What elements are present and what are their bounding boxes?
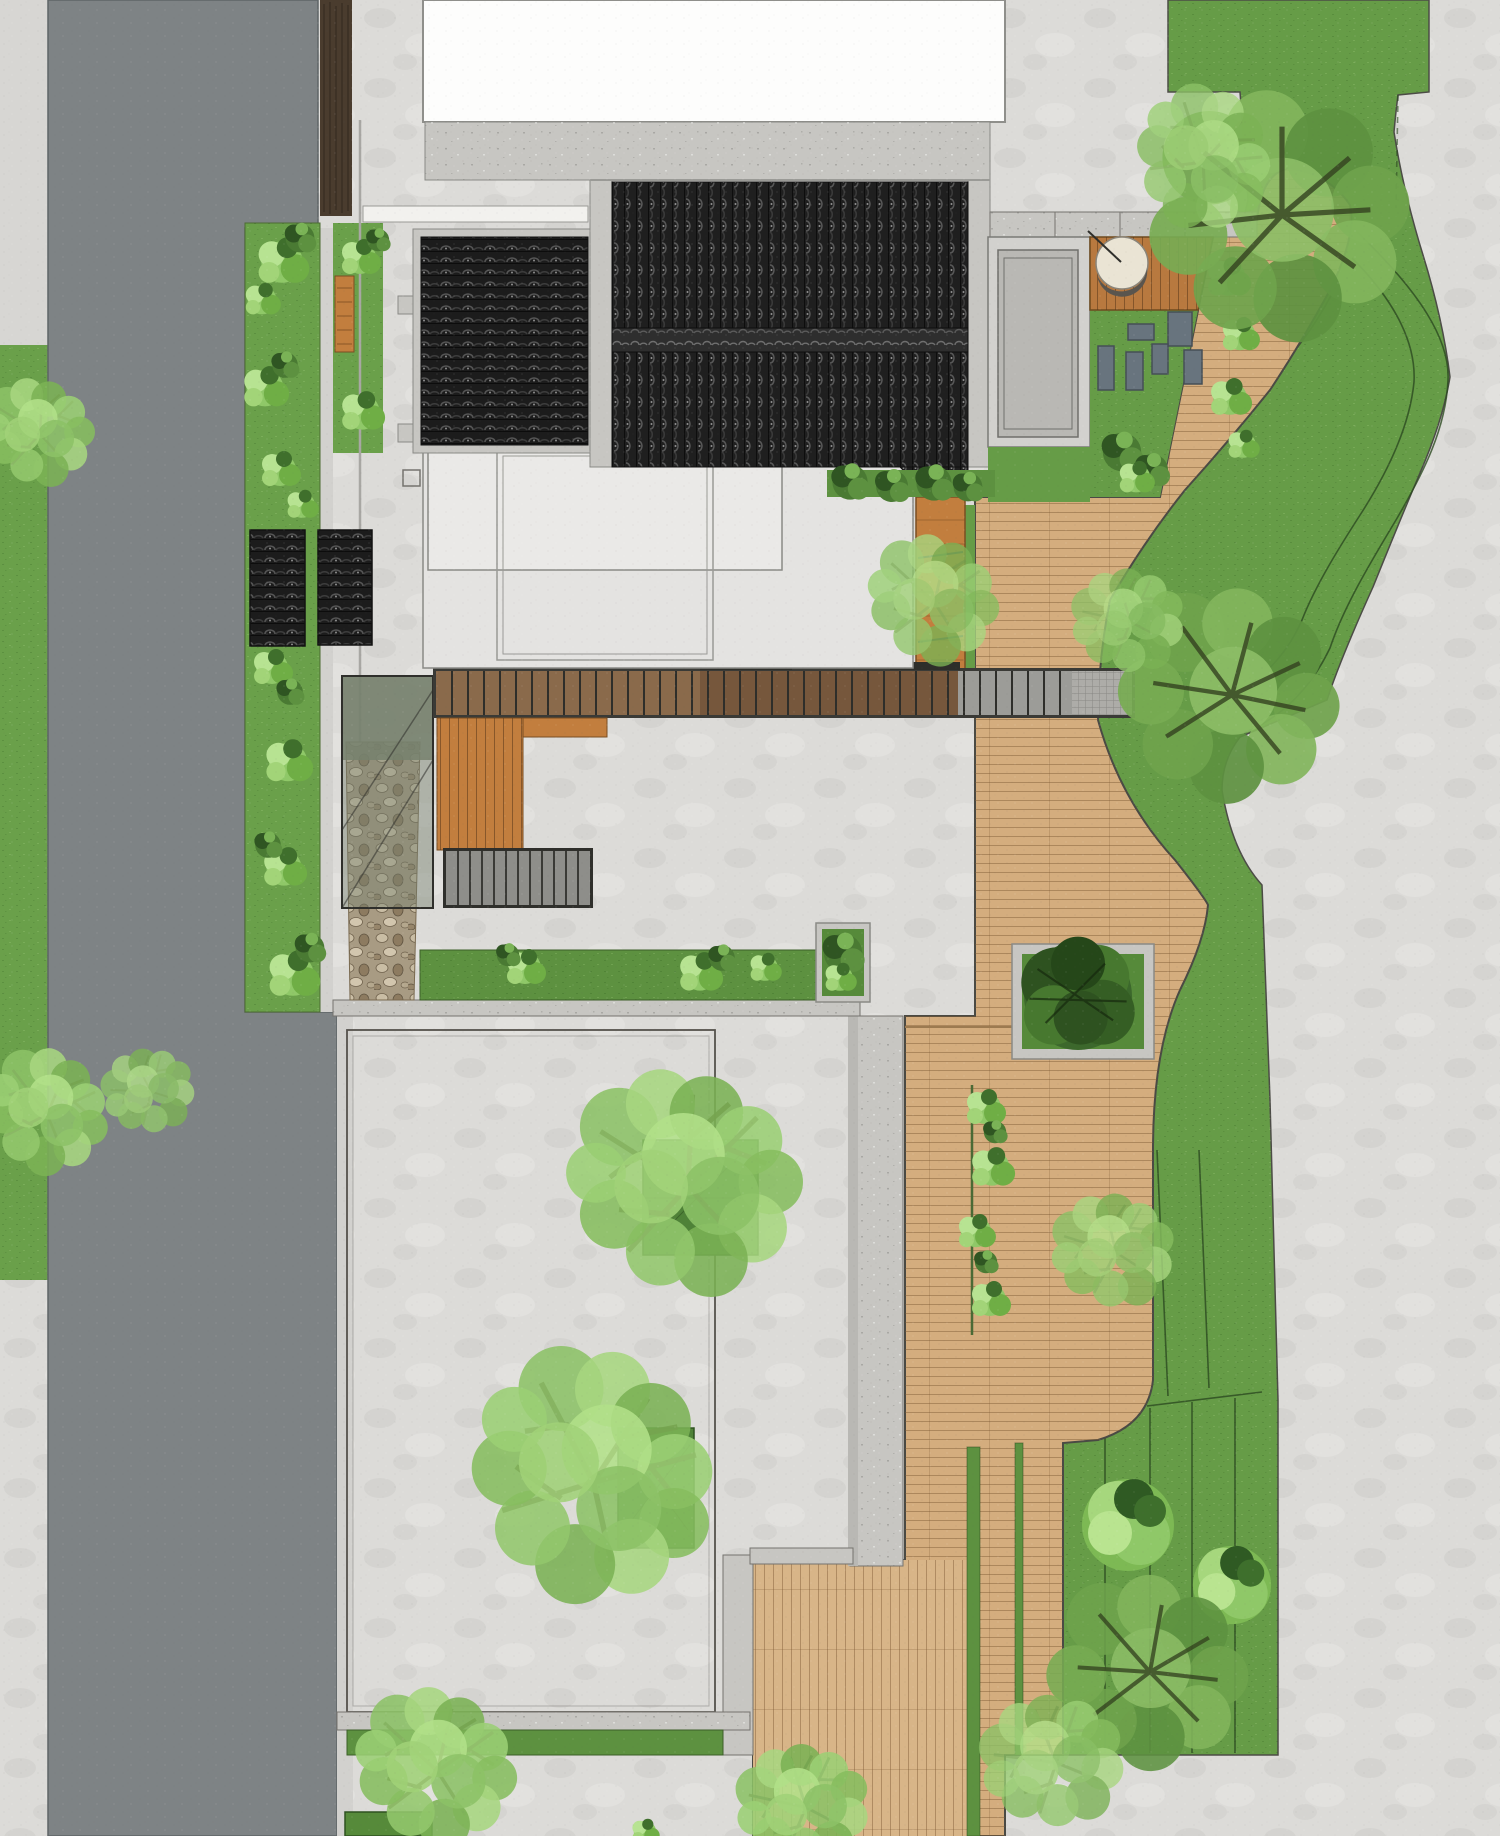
site-plan-canvas [0,0,1500,1836]
render-noise-overlay [0,0,1500,1836]
site-plan [0,0,1500,1836]
